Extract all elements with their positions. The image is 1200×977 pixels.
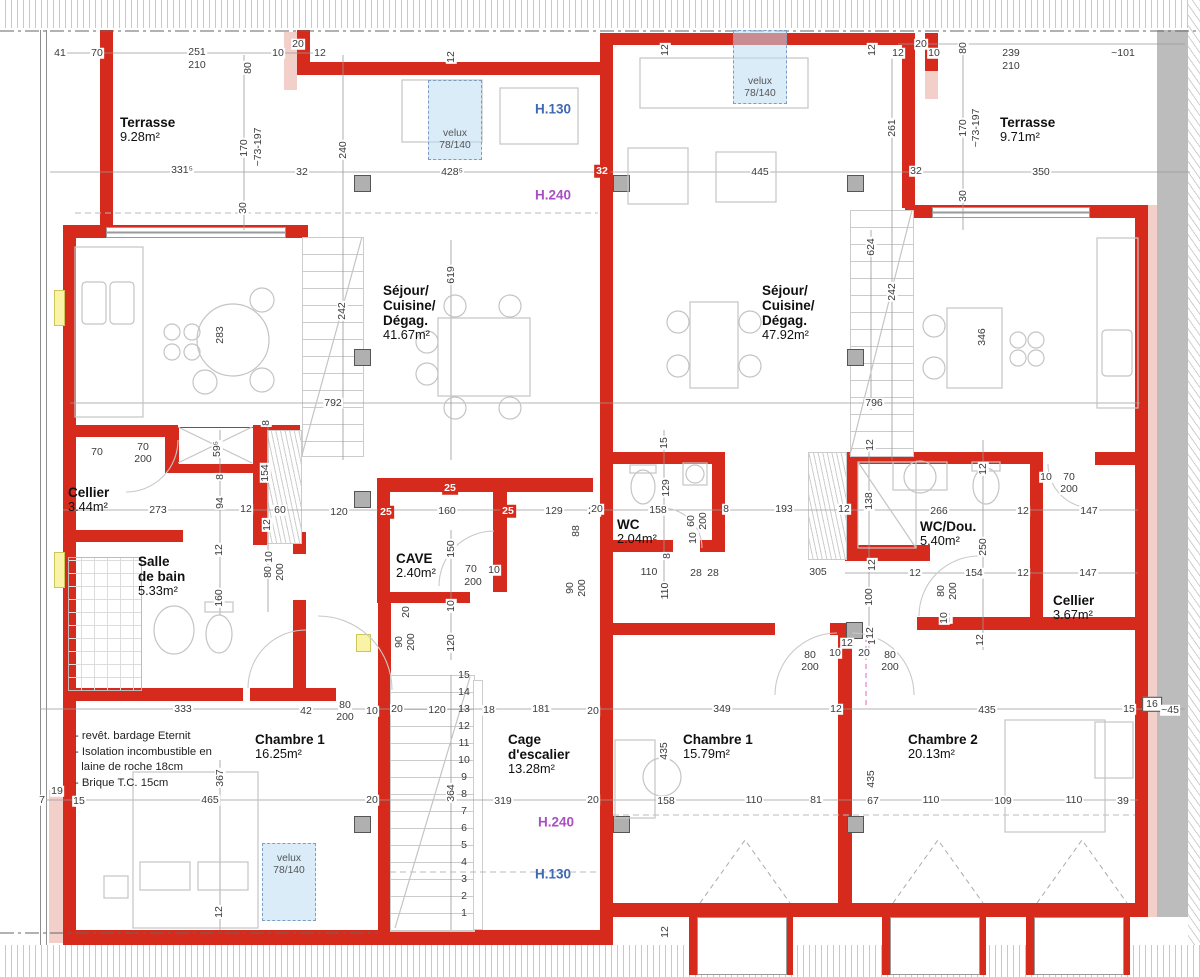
- dim-label: 305: [808, 567, 828, 578]
- dim-label: 42: [299, 706, 313, 717]
- dim-label: 240: [338, 140, 349, 160]
- dim-label: 59⁵: [212, 440, 223, 458]
- dim-label: 147: [1079, 506, 1099, 517]
- room-label: Caged'escalier13.28m²: [508, 732, 570, 777]
- floor-plan: 417025121010201280170~73-197331⁵32302401…: [0, 0, 1200, 977]
- dim-label: 10: [828, 648, 842, 659]
- dim-label: 20: [586, 706, 600, 717]
- dim-label: 242: [887, 282, 898, 302]
- dim-label: 80: [803, 650, 817, 661]
- dim-label: 30: [238, 201, 249, 215]
- dim-label: 624: [866, 237, 877, 257]
- column: [613, 175, 630, 192]
- dim-label: 250: [978, 537, 989, 557]
- wall: [902, 33, 915, 208]
- dim-label: 154: [964, 568, 984, 579]
- dim-label: 8: [722, 504, 730, 515]
- dim-label: 28: [706, 568, 720, 579]
- dim-label: 331⁵: [170, 165, 194, 176]
- room-label: CAVE2.40m²: [396, 551, 436, 580]
- column: [354, 349, 371, 366]
- dim-label: 70: [90, 48, 104, 59]
- dim-label: 10: [446, 599, 457, 613]
- dim-label: 150: [446, 539, 457, 559]
- dim-label: 435: [977, 705, 997, 716]
- stair-number: 10: [457, 755, 471, 766]
- dim-label: 20: [401, 605, 412, 619]
- stair-number: 1: [460, 908, 468, 919]
- dim-label: 160: [437, 506, 457, 517]
- dim-label: 15: [1122, 704, 1136, 715]
- stair-number: 6: [460, 823, 468, 834]
- dim-label: 239: [1001, 48, 1021, 59]
- dim-label: 32: [295, 167, 309, 178]
- dim-label: ~101: [1110, 48, 1136, 59]
- dim-label: 333: [173, 704, 193, 715]
- stair-number: 9: [460, 772, 468, 783]
- window: [106, 227, 286, 238]
- dim-label: 20: [590, 504, 604, 515]
- room-label: Terrasse9.71m²: [1000, 115, 1055, 144]
- roof-hatch-right: [1188, 0, 1200, 945]
- velux-label: 78/140: [263, 866, 315, 876]
- dim-label: 94: [215, 496, 226, 510]
- dim-label: 435: [659, 741, 670, 761]
- dim-label: 70: [1062, 472, 1076, 483]
- dim-label: 200: [335, 712, 355, 723]
- dim-label: 200: [577, 578, 588, 598]
- dim-label: 792: [323, 398, 343, 409]
- wall-bedroom-divider: [838, 623, 852, 917]
- dim-label: 619: [446, 265, 457, 285]
- dim-label: 10: [688, 531, 699, 545]
- velux-box: velux78/140: [733, 30, 787, 104]
- gable-band-right: [1157, 30, 1188, 917]
- height-annotation: H.130: [535, 102, 571, 117]
- dim-label: 120: [329, 507, 349, 518]
- height-annotation: H.240: [535, 188, 571, 203]
- dim-label: 200: [133, 454, 153, 465]
- dim-label: 10: [264, 550, 275, 564]
- dormer-window: [890, 917, 980, 975]
- dim-label: 32: [594, 165, 610, 178]
- height-annotation: H.130: [535, 867, 571, 882]
- dim-label: 266: [929, 506, 949, 517]
- dim-label: 210: [187, 60, 207, 71]
- room-label: Cellier3.67m²: [1053, 593, 1094, 622]
- dim-label: 88: [571, 524, 582, 538]
- dim-label: 8: [261, 419, 272, 427]
- dim-label: 110: [745, 795, 764, 806]
- dim-label: 110: [1065, 795, 1084, 806]
- stair-number: 14: [457, 687, 471, 698]
- dim-label: 19: [50, 786, 64, 797]
- dim-label: 350: [1031, 167, 1051, 178]
- column: [847, 349, 864, 366]
- dim-label: 12: [891, 48, 905, 59]
- dim-label: 283: [215, 325, 226, 345]
- wall: [1095, 452, 1135, 465]
- stair-upper-left: [302, 237, 364, 457]
- dim-label: 349: [712, 704, 732, 715]
- dim-label: 109: [993, 796, 1013, 807]
- stair-number: 5: [460, 840, 468, 851]
- dim-label: 200: [698, 511, 709, 531]
- dim-label: 170: [958, 118, 969, 138]
- dim-label: 12: [660, 43, 671, 57]
- room-label: Terrasse9.28m²: [120, 115, 175, 144]
- dim-label: 261: [887, 118, 898, 138]
- dim-label: 445: [750, 167, 770, 178]
- stair-number: 4: [460, 857, 468, 868]
- velux-label: 78/140: [734, 89, 786, 99]
- wall: [100, 30, 113, 237]
- stair-number: 12: [457, 721, 471, 732]
- dim-label: 364: [446, 783, 457, 803]
- column: [354, 491, 371, 508]
- facade-line-left: [40, 30, 47, 945]
- dim-label: 12: [865, 438, 876, 452]
- insulation-strip: [1148, 205, 1157, 917]
- dim-label: 251: [187, 47, 207, 58]
- dim-label: 67: [866, 796, 880, 807]
- dim-label: 80: [338, 700, 352, 711]
- dim-label: 12: [865, 626, 876, 640]
- dim-label: 80: [883, 650, 897, 661]
- roof-hatch-bottom: [0, 945, 1200, 977]
- dim-label: 110: [660, 582, 671, 601]
- dormer-jamb: [689, 917, 697, 975]
- dim-label: 346: [977, 327, 988, 347]
- dim-label: 160: [214, 588, 225, 608]
- dormer-jamb: [882, 917, 890, 975]
- dim-label: 80: [936, 584, 947, 598]
- velux-label: 78/140: [429, 141, 481, 151]
- dim-label: 15: [659, 436, 670, 450]
- light-fixture: [54, 290, 65, 326]
- velux-box: velux78/140: [428, 80, 482, 160]
- dim-label: 12: [975, 633, 986, 647]
- dim-label: 70: [464, 564, 478, 575]
- dim-label: 20: [857, 648, 871, 659]
- wall-bottom-right: [613, 903, 1143, 917]
- dim-label: 200: [948, 581, 959, 601]
- wall-wc: [613, 452, 725, 464]
- dim-label: 367: [215, 768, 226, 788]
- wall: [300, 688, 336, 701]
- wall: [63, 425, 175, 437]
- dim-label: 120: [427, 705, 447, 716]
- dim-label: 12: [262, 518, 273, 532]
- dim-label: 10: [487, 565, 501, 576]
- roof-hatch-top: [0, 0, 1200, 28]
- dim-label: 28: [689, 568, 703, 579]
- velux-label: velux: [429, 129, 481, 139]
- dim-label: 10: [365, 706, 379, 717]
- stair-upper-right: [850, 210, 914, 457]
- dim-label: 465: [200, 795, 220, 806]
- dim-label: ~73-197: [253, 127, 264, 168]
- dim-label: ~45: [1160, 705, 1180, 716]
- dim-label: 12: [837, 504, 851, 515]
- column: [613, 816, 630, 833]
- dim-label: 90: [565, 581, 576, 595]
- dim-label: 12: [908, 568, 922, 579]
- dim-label: 90: [394, 635, 405, 649]
- dim-label: 193: [774, 504, 794, 515]
- dim-label: 12: [978, 462, 989, 476]
- dim-label: 12: [840, 638, 854, 649]
- room-label: Cellier3.44m²: [68, 485, 109, 514]
- dim-label: 30: [958, 189, 969, 203]
- wall: [300, 62, 613, 75]
- dim-label: 80: [263, 565, 274, 579]
- wall-wc: [700, 540, 725, 552]
- room-label: WC/Dou.5.40m²: [920, 519, 976, 548]
- dim-label: 25: [378, 506, 394, 519]
- wall-cave: [377, 478, 593, 492]
- velux-label: velux: [263, 854, 315, 864]
- light-fixture: [54, 552, 65, 588]
- room-label: Sallede bain5.33m²: [138, 554, 185, 599]
- dim-label: 435: [866, 769, 877, 789]
- column: [354, 816, 371, 833]
- dim-label: 12: [1016, 568, 1030, 579]
- dim-label: 80: [958, 41, 969, 55]
- dim-label: 20: [914, 39, 928, 50]
- dim-label: 200: [880, 662, 900, 673]
- stair-number: 13: [457, 704, 471, 715]
- dim-label: 25: [500, 505, 516, 518]
- dim-label: 7: [38, 795, 46, 806]
- window: [932, 207, 1090, 218]
- dim-label: 12: [214, 905, 225, 919]
- column: [847, 816, 864, 833]
- dim-label: 12: [1016, 506, 1030, 517]
- dim-label: 120: [446, 633, 457, 653]
- dim-label: 110: [640, 567, 659, 578]
- wall-right-outer: [1135, 205, 1148, 917]
- dim-label: 200: [275, 562, 286, 582]
- dim-label: 12: [313, 48, 327, 59]
- wall: [250, 688, 306, 701]
- velux-box: velux78/140: [262, 843, 316, 921]
- light-fixture: [356, 634, 371, 652]
- dim-label: 10: [271, 48, 285, 59]
- dim-label: 200: [406, 632, 417, 652]
- dim-label: 200: [463, 577, 483, 588]
- dim-label: 12: [214, 543, 225, 557]
- dim-label: 10: [939, 611, 950, 625]
- stair-number: 2: [460, 891, 468, 902]
- dormer-window: [697, 917, 787, 975]
- wall-bottom-left: [63, 930, 613, 945]
- dim-label: 70: [90, 447, 104, 458]
- wall: [917, 617, 1040, 630]
- stair-number: 7: [460, 806, 468, 817]
- dim-label: 158: [648, 505, 668, 516]
- dim-label: 12: [660, 925, 671, 939]
- dormer-jamb: [1026, 917, 1034, 975]
- dim-label: 12: [239, 504, 253, 515]
- wall: [63, 530, 183, 542]
- stair-number: 3: [460, 874, 468, 885]
- dim-label: 428⁵: [440, 167, 464, 178]
- dim-label: 200: [800, 662, 820, 673]
- dim-label: 273: [148, 505, 168, 516]
- dim-label: 147: [1078, 568, 1098, 579]
- room-label: WC2.04m²: [617, 517, 657, 546]
- dim-label: 70: [136, 442, 150, 453]
- stair-number: 15: [457, 670, 471, 681]
- stair-stringer: [473, 680, 483, 930]
- construction-notes: - revêt. bardage Eternit - Isolation inc…: [75, 729, 212, 791]
- wall: [845, 545, 930, 561]
- column: [354, 175, 371, 192]
- dim-label: 16: [1142, 697, 1162, 712]
- dim-label: 170: [239, 138, 250, 158]
- velux-label: velux: [734, 77, 786, 87]
- dim-label: 39: [1116, 796, 1130, 807]
- room-label: Chambre 116.25m²: [255, 732, 325, 761]
- dim-label: 181: [531, 704, 551, 715]
- dim-label: 12: [829, 704, 843, 715]
- dim-label: 20: [365, 795, 379, 806]
- room-label: Chambre 115.79m²: [683, 732, 753, 761]
- stair-number: 8: [460, 789, 468, 800]
- dim-label: 12: [446, 50, 457, 64]
- dim-label: 18: [482, 705, 496, 716]
- dim-label: 12: [867, 43, 878, 57]
- room-label: Séjour/Cuisine/Dégag.41.67m²: [383, 283, 436, 343]
- stair-number: 11: [458, 738, 471, 749]
- dim-label: 25: [442, 482, 458, 495]
- dim-label: ~73-197: [971, 108, 982, 149]
- wall: [293, 600, 306, 690]
- dim-label: 154: [260, 463, 271, 483]
- dim-label: 10: [1039, 472, 1053, 483]
- dim-label: 100: [864, 587, 875, 607]
- dim-label: 158: [656, 796, 676, 807]
- dim-label: 8: [662, 552, 673, 560]
- dim-label: 12: [867, 558, 878, 572]
- insulation-strip: [925, 71, 938, 99]
- dim-label: 20: [291, 39, 305, 50]
- dim-label: 60: [686, 514, 697, 528]
- dim-label: 20: [586, 795, 600, 806]
- dim-label: 80: [243, 61, 254, 75]
- dim-label: 81: [809, 795, 823, 806]
- dim-label: 10: [927, 48, 941, 59]
- dim-label: 60: [273, 505, 287, 516]
- dim-label: 32: [909, 166, 923, 177]
- dim-label: 138: [864, 491, 875, 511]
- dim-label: 129: [661, 478, 672, 498]
- dim-label: 319: [493, 796, 513, 807]
- room-label: Chambre 220.13m²: [908, 732, 978, 761]
- dim-label: 15: [72, 796, 86, 807]
- dim-label: 110: [922, 795, 941, 806]
- dim-label: 200: [1059, 484, 1079, 495]
- column: [847, 175, 864, 192]
- dim-label: 20: [390, 704, 404, 715]
- dim-label: 129: [544, 506, 564, 517]
- dim-label: 242: [337, 301, 348, 321]
- height-annotation: H.240: [538, 815, 574, 830]
- wall: [613, 623, 775, 635]
- dim-label: 210: [1001, 61, 1021, 72]
- dormer-window: [1034, 917, 1124, 975]
- dim-label: 796: [864, 398, 884, 409]
- shower-floor: [68, 557, 142, 691]
- dim-label: 8: [215, 473, 226, 481]
- dim-label: 41: [53, 48, 67, 59]
- room-label: Séjour/Cuisine/Dégag.47.92m²: [762, 283, 815, 343]
